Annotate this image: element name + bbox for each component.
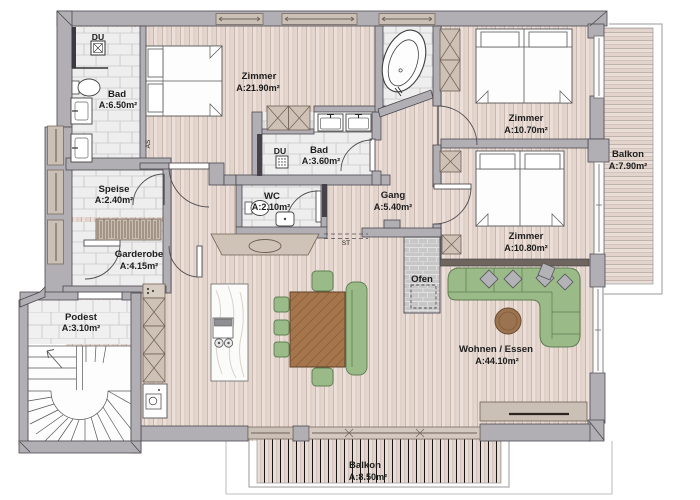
svg-text:A:10.70m²: A:10.70m² (504, 125, 547, 135)
svg-text:Zimmer: Zimmer (242, 71, 277, 82)
svg-text:A:21.90m²: A:21.90m² (236, 83, 279, 93)
svg-text:AS: AS (145, 139, 152, 148)
svg-text:A:7.90m²: A:7.90m² (609, 161, 647, 171)
svg-text:A:3.10m²: A:3.10m² (62, 323, 100, 333)
svg-text:Bad: Bad (108, 89, 126, 100)
svg-text:Wohnen / Essen: Wohnen / Essen (459, 344, 533, 355)
svg-text:Bad: Bad (310, 145, 328, 156)
svg-text:DU: DU (274, 146, 286, 156)
svg-text:DU: DU (92, 32, 104, 42)
svg-text:WC: WC (264, 191, 280, 202)
svg-text:A:5.40m²: A:5.40m² (374, 202, 412, 212)
svg-text:A:6.50m²: A:6.50m² (99, 100, 137, 110)
svg-text:A:8.50m²: A:8.50m² (349, 472, 387, 482)
svg-text:A:2.10m²: A:2.10m² (252, 202, 290, 212)
svg-text:Ofen: Ofen (411, 274, 433, 285)
svg-text:A:10.80m²: A:10.80m² (504, 243, 547, 253)
svg-text:ST: ST (342, 240, 350, 247)
svg-text:Garderobe: Garderobe (115, 249, 164, 260)
svg-text:A:2.40m²: A:2.40m² (95, 195, 133, 205)
svg-text:Balkon: Balkon (349, 460, 381, 471)
svg-text:Gang: Gang (381, 190, 406, 201)
svg-text:Zimmer: Zimmer (509, 231, 544, 242)
svg-text:Speise: Speise (99, 184, 130, 195)
svg-text:Zimmer: Zimmer (509, 113, 544, 124)
svg-text:A:3.60m²: A:3.60m² (302, 156, 340, 166)
svg-text:A:4.15m²: A:4.15m² (120, 261, 158, 271)
svg-text:A:44.10m²: A:44.10m² (475, 356, 518, 366)
svg-text:Balkon: Balkon (612, 149, 644, 160)
svg-text:Podest: Podest (65, 312, 98, 323)
